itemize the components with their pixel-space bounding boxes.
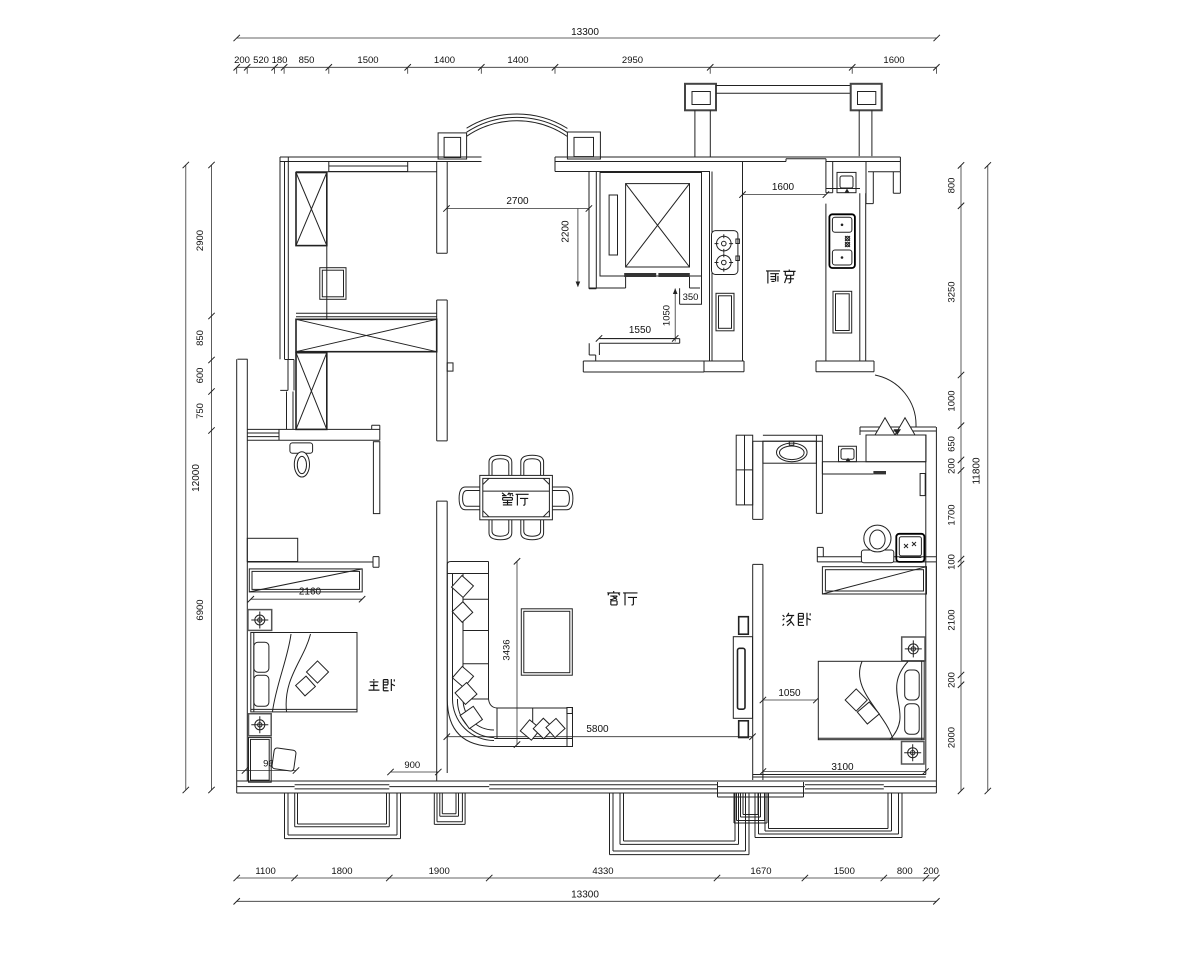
svg-text:200: 200 [947, 672, 958, 688]
svg-text:1600: 1600 [772, 182, 795, 193]
svg-text:3250: 3250 [947, 281, 958, 302]
svg-text:2100: 2100 [947, 609, 958, 630]
svg-text:650: 650 [947, 436, 958, 452]
svg-text:180: 180 [272, 55, 288, 66]
svg-text:520: 520 [253, 55, 269, 66]
svg-text:1700: 1700 [947, 504, 958, 525]
svg-text:200: 200 [947, 458, 958, 474]
svg-text:200: 200 [923, 866, 939, 877]
svg-text:2000: 2000 [947, 727, 958, 748]
svg-text:5800: 5800 [586, 724, 609, 735]
svg-text:1050: 1050 [778, 688, 801, 699]
svg-text:800: 800 [897, 866, 913, 877]
svg-text:1900: 1900 [429, 866, 450, 877]
svg-text:1670: 1670 [750, 866, 771, 877]
svg-text:2950: 2950 [622, 55, 643, 66]
svg-text:2700: 2700 [506, 196, 529, 207]
svg-text:1000: 1000 [947, 390, 958, 411]
svg-text:12000: 12000 [191, 464, 202, 492]
svg-text:13300: 13300 [571, 890, 599, 901]
svg-text:1600: 1600 [883, 55, 904, 66]
svg-text:1500: 1500 [357, 55, 378, 66]
svg-text:3436: 3436 [502, 639, 513, 660]
svg-text:200: 200 [234, 55, 250, 66]
svg-text:6900: 6900 [195, 599, 206, 620]
svg-text:4330: 4330 [592, 866, 613, 877]
svg-text:900: 900 [404, 760, 420, 771]
svg-text:1500: 1500 [834, 866, 855, 877]
svg-text:850: 850 [195, 330, 206, 346]
svg-text:2200: 2200 [561, 220, 572, 243]
svg-text:11800: 11800 [972, 457, 983, 485]
svg-text:13300: 13300 [571, 27, 599, 38]
svg-text:1100: 1100 [255, 866, 275, 877]
svg-text:850: 850 [299, 55, 315, 66]
svg-text:1550: 1550 [629, 325, 652, 336]
svg-text:800: 800 [947, 178, 958, 194]
svg-text:1400: 1400 [507, 55, 528, 66]
svg-text:3100: 3100 [831, 762, 854, 773]
svg-text:1400: 1400 [434, 55, 455, 66]
svg-text:600: 600 [195, 368, 206, 384]
svg-text:1800: 1800 [331, 866, 352, 877]
svg-text:2900: 2900 [195, 230, 206, 251]
svg-text:1050: 1050 [662, 305, 673, 326]
svg-text:750: 750 [195, 403, 206, 419]
svg-text:350: 350 [683, 292, 699, 303]
svg-text:100: 100 [947, 554, 958, 570]
